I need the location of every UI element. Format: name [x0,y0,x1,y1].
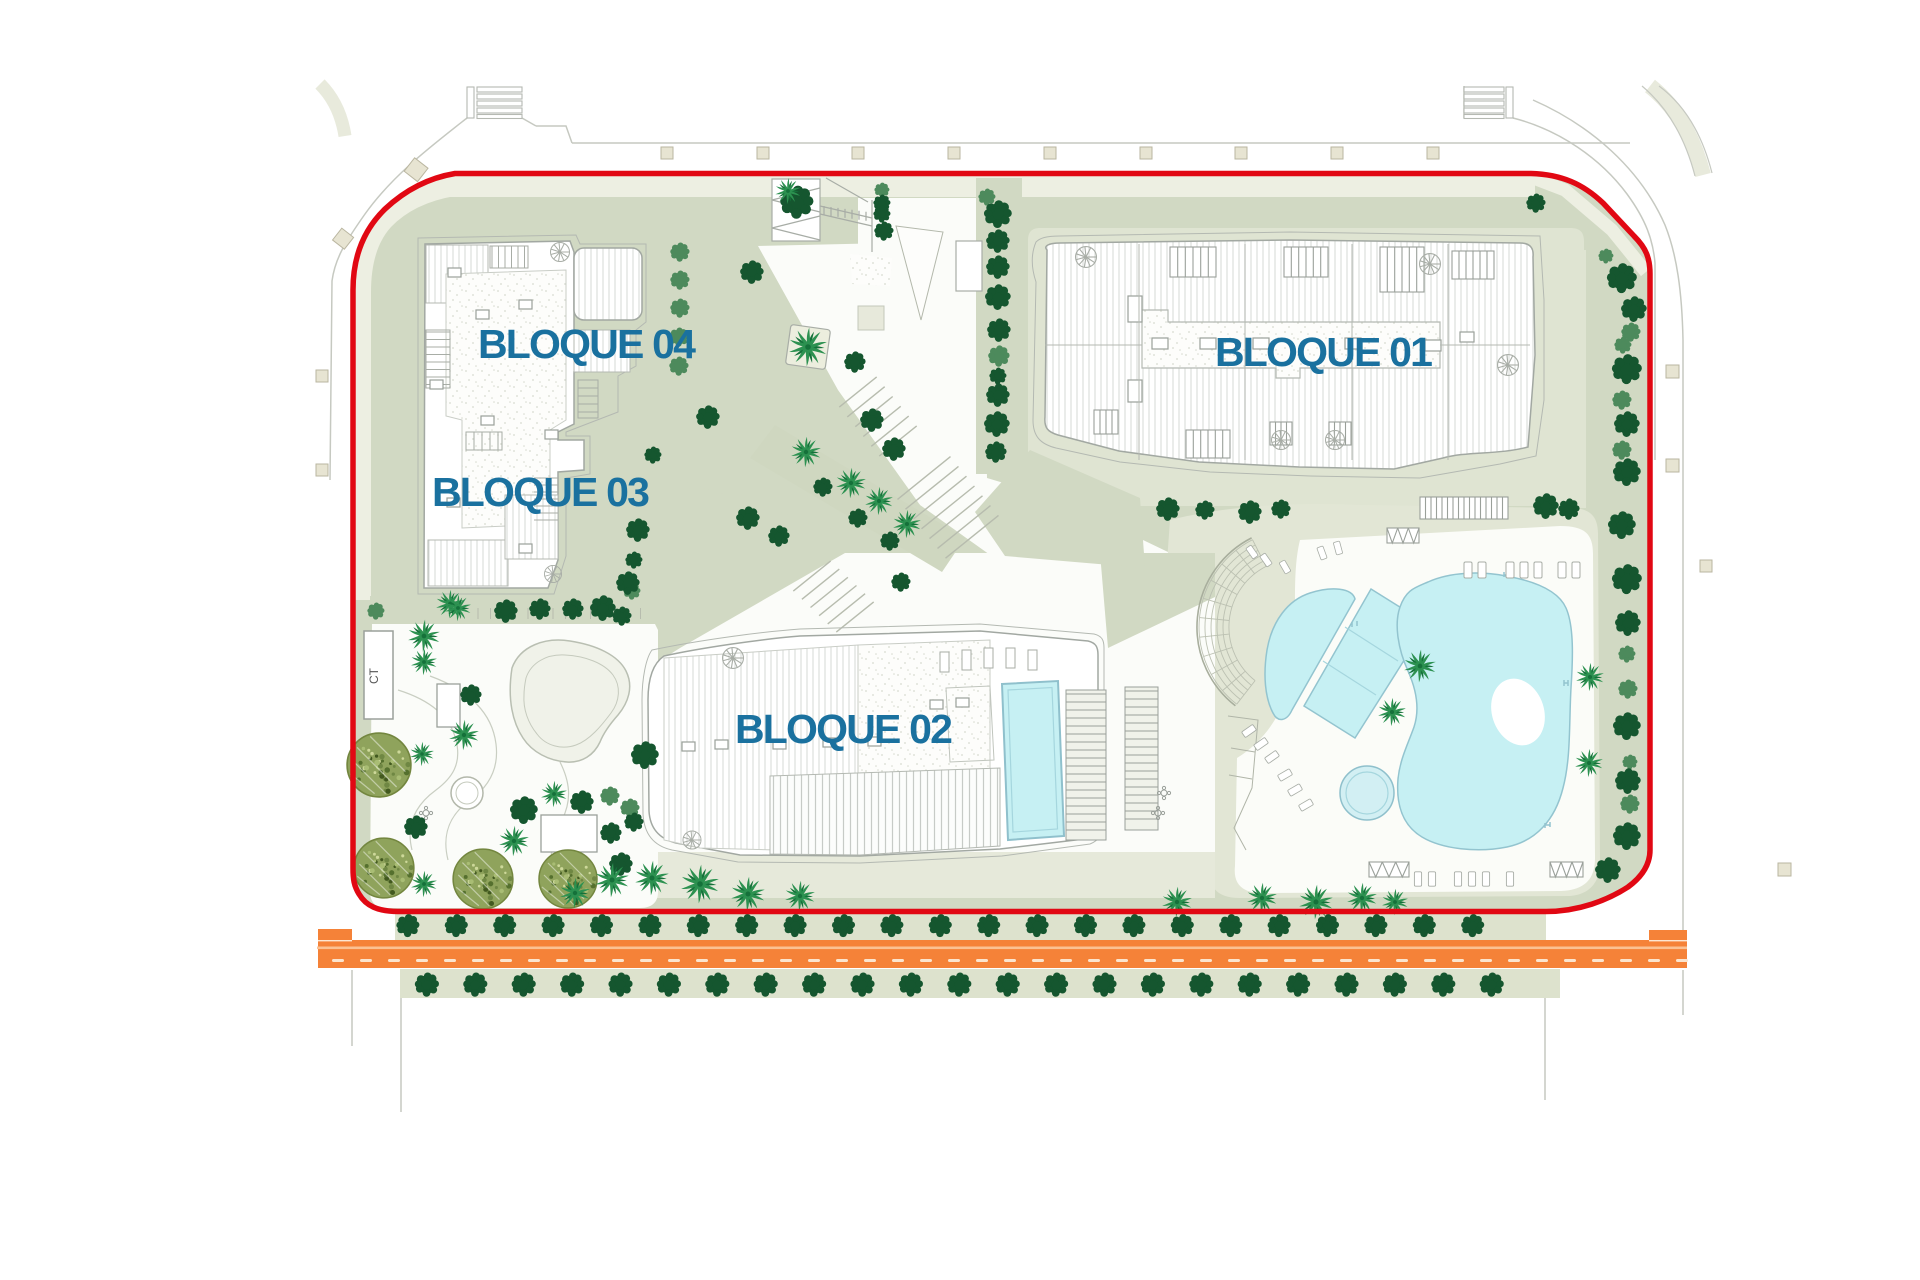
svg-text:BLOQUE 02: BLOQUE 02 [735,706,952,752]
svg-text:BLOQUE 01: BLOQUE 01 [1215,329,1432,375]
svg-text:CT: CT [367,667,381,684]
svg-text:BLOQUE 04: BLOQUE 04 [478,321,696,367]
svg-text:BLOQUE 03: BLOQUE 03 [432,469,649,515]
